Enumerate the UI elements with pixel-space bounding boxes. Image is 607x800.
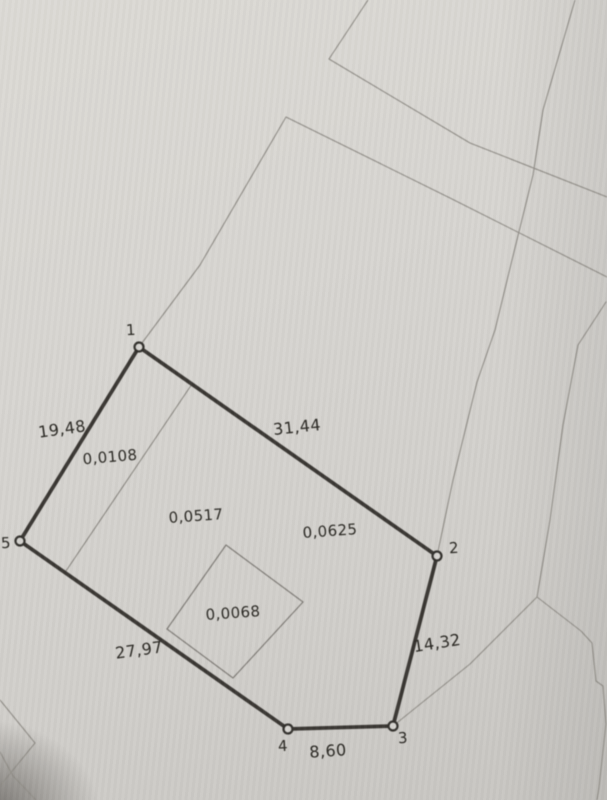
adjacent-parcel-line-to-point3 <box>393 597 537 726</box>
parcel-boundary <box>20 347 437 729</box>
vertex-label-3: 3 <box>398 729 409 747</box>
vertex-label-4: 4 <box>278 737 289 755</box>
plan-layer: 1 2 3 4 5 19,48 31,44 14,32 8,60 27,97 0… <box>0 0 607 800</box>
adjacent-parcel-line-right-lower <box>537 302 606 597</box>
vertex-label-5: 5 <box>1 534 12 552</box>
cadastral-plan-photo: 1 2 3 4 5 19,48 31,44 14,32 8,60 27,97 0… <box>0 0 607 800</box>
corner-structure-line-inner <box>0 752 36 800</box>
inner-division-line <box>66 384 192 571</box>
vertex-marker-3 <box>389 722 398 731</box>
adjacent-parcel-stepped-boundary <box>537 597 606 800</box>
area-label-building: 0,0068 <box>205 602 261 624</box>
corner-structure-line-outer <box>0 700 35 786</box>
adjacent-parcel-line-top <box>329 0 607 197</box>
vertex-marker-4 <box>284 725 293 734</box>
edge-length-label-3-4: 8,60 <box>309 740 347 762</box>
plan-geometry <box>0 0 607 800</box>
vertex-marker-1 <box>135 343 144 352</box>
vertex-marker-2 <box>433 552 442 561</box>
area-label-main-part: 0,0517 <box>168 505 224 527</box>
adjacent-parcel-line-right-vertical <box>437 0 575 556</box>
vertex-marker-5 <box>16 537 25 546</box>
vertex-label-2: 2 <box>449 539 460 557</box>
area-label-total-parcel: 0,0625 <box>302 520 358 542</box>
vertex-label-1: 1 <box>126 321 137 339</box>
